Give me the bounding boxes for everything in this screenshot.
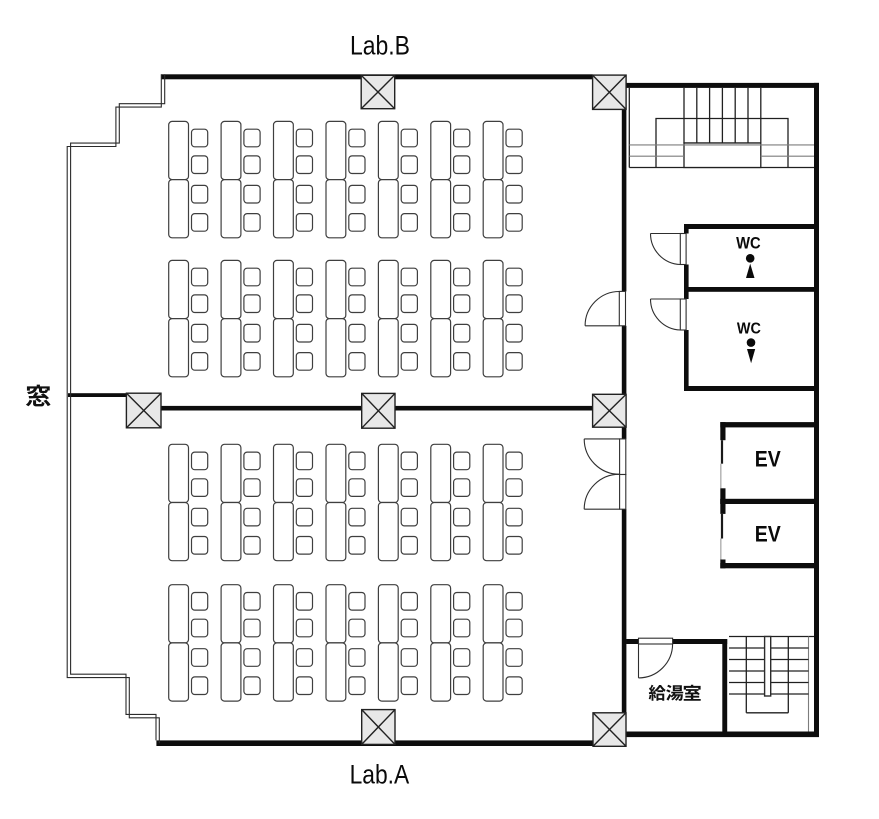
svg-text:Lab.A: Lab.A [350, 760, 410, 790]
svg-text:WC: WC [736, 235, 761, 253]
svg-text:EV: EV [755, 522, 781, 547]
svg-text:Lab.B: Lab.B [350, 31, 410, 61]
svg-text:WC: WC [737, 321, 761, 338]
svg-text:EV: EV [755, 447, 781, 472]
